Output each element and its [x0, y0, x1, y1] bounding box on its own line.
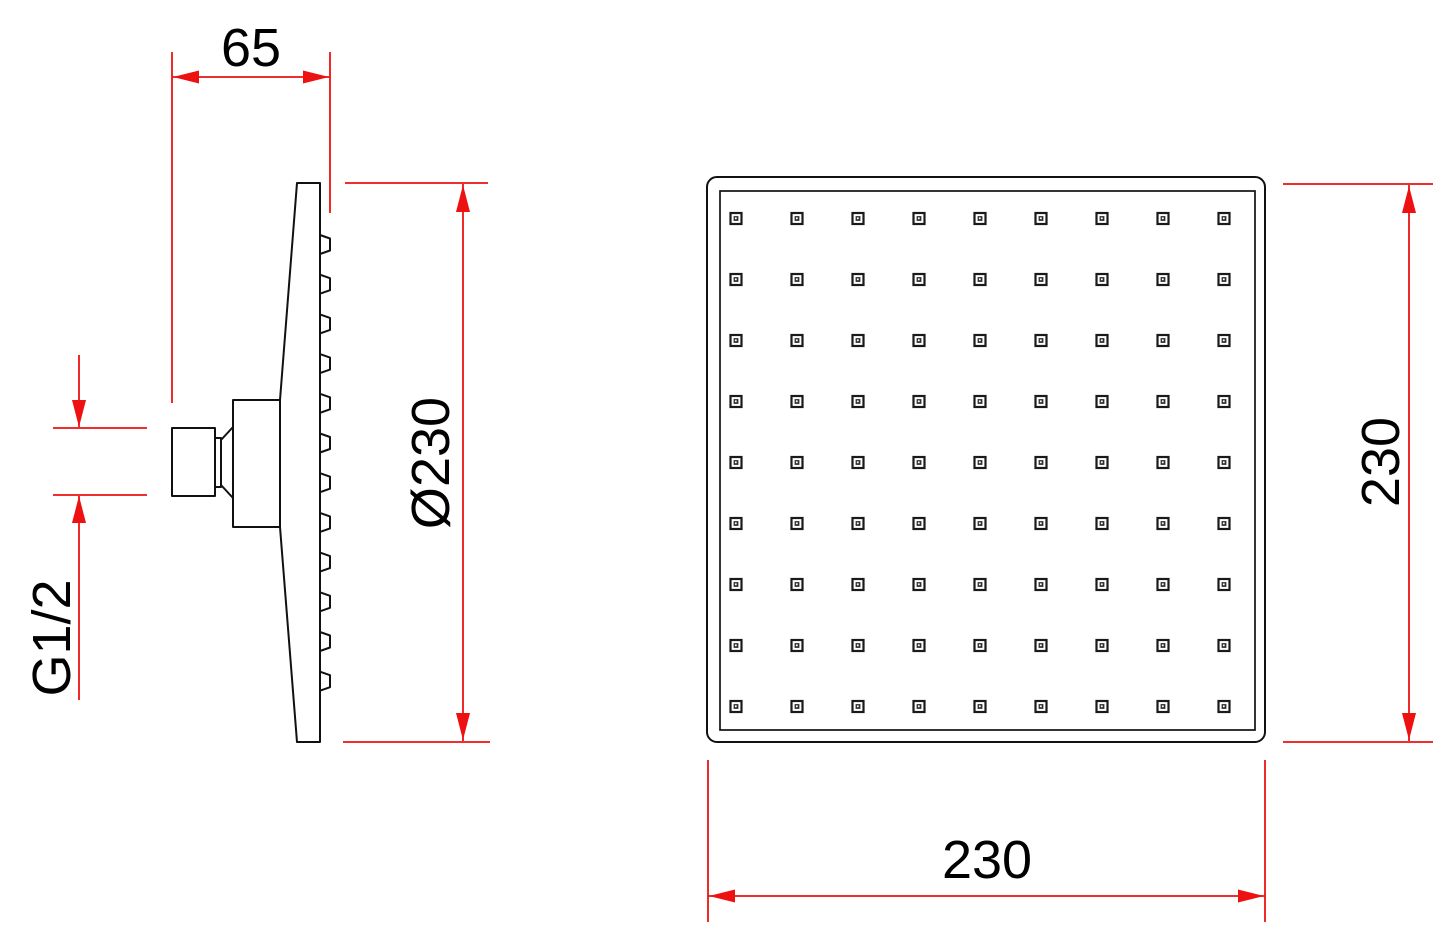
nozzle-hole: [731, 701, 742, 712]
nozzle-hole: [731, 213, 742, 224]
nozzle-hole: [792, 396, 803, 407]
nozzle-hole: [853, 335, 864, 346]
side-nozzle-bump: [320, 473, 330, 492]
nozzle-hole: [975, 274, 986, 285]
nozzle-hole: [792, 213, 803, 224]
side-view: [172, 183, 330, 742]
side-nozzle-bump: [320, 434, 330, 453]
nozzle-hole: [914, 457, 925, 468]
side-view-inlet-stub: [172, 428, 215, 496]
nozzle-hole: [1097, 457, 1108, 468]
nozzle-hole: [1219, 396, 1230, 407]
nozzle-hole: [975, 701, 986, 712]
nozzle-hole: [975, 579, 986, 590]
nozzle-hole: [792, 518, 803, 529]
nozzle-hole: [1158, 396, 1169, 407]
dim-label-side-diameter: Ø230: [401, 397, 461, 529]
nozzle-hole: [792, 701, 803, 712]
nozzle-hole: [1219, 213, 1230, 224]
nozzle-hole: [1036, 640, 1047, 651]
nozzle-hole: [853, 701, 864, 712]
dim-label-side-depth: 65: [221, 18, 281, 78]
front-view: [707, 177, 1265, 742]
nozzle-hole: [1036, 701, 1047, 712]
nozzle-hole: [1158, 457, 1169, 468]
nozzle-hole: [914, 579, 925, 590]
nozzle-hole: [975, 518, 986, 529]
nozzle-hole: [731, 274, 742, 285]
nozzle-hole: [1219, 640, 1230, 651]
nozzle-hole: [1097, 396, 1108, 407]
nozzle-hole: [731, 396, 742, 407]
nozzle-hole: [1219, 457, 1230, 468]
nozzle-hole: [1158, 335, 1169, 346]
nozzle-hole: [914, 396, 925, 407]
nozzle-hole: [1219, 518, 1230, 529]
nozzle-hole: [1097, 579, 1108, 590]
nozzle-hole: [731, 457, 742, 468]
side-nozzle-bump: [320, 672, 330, 691]
nozzle-hole: [792, 640, 803, 651]
side-nozzle-bump: [320, 632, 330, 651]
side-view-plate: [280, 183, 320, 742]
nozzle-hole: [1158, 640, 1169, 651]
nozzle-hole: [1036, 457, 1047, 468]
nozzle-hole: [1097, 335, 1108, 346]
nozzle-hole: [731, 335, 742, 346]
side-nozzle-bump: [320, 314, 330, 333]
nozzle-hole: [731, 640, 742, 651]
side-nozzle-bump: [320, 394, 330, 413]
side-nozzle-bump: [320, 235, 330, 254]
nozzle-hole: [914, 640, 925, 651]
dim-label-front-width: 230: [942, 830, 1032, 890]
nozzle-hole: [1158, 579, 1169, 590]
nozzle-hole: [1158, 518, 1169, 529]
nozzle-hole: [792, 274, 803, 285]
shower-head-drawing: 65 Ø230 G1/2 230 230: [0, 0, 1446, 945]
nozzle-hole: [914, 335, 925, 346]
nozzle-hole: [975, 457, 986, 468]
nozzle-hole: [853, 640, 864, 651]
side-nozzle-bumps: [320, 235, 330, 691]
nozzle-hole: [731, 518, 742, 529]
nozzle-hole: [1036, 396, 1047, 407]
nozzle-hole: [914, 701, 925, 712]
nozzle-hole: [1036, 335, 1047, 346]
side-nozzle-bump: [320, 592, 330, 611]
nozzle-hole: [792, 335, 803, 346]
dim-label-thread: G1/2: [22, 579, 82, 696]
nozzle-hole: [1097, 640, 1108, 651]
side-nozzle-bump: [320, 513, 330, 532]
nozzle-hole: [975, 640, 986, 651]
nozzle-hole: [914, 213, 925, 224]
nozzle-hole: [914, 274, 925, 285]
nozzle-hole: [1036, 518, 1047, 529]
technical-drawing-page: 65 Ø230 G1/2 230 230: [0, 0, 1446, 945]
nozzle-hole: [853, 518, 864, 529]
nozzle-hole: [1036, 579, 1047, 590]
side-nozzle-bump: [320, 354, 330, 373]
nozzle-hole: [1219, 274, 1230, 285]
nozzle-hole: [853, 274, 864, 285]
nozzle-hole: [1036, 274, 1047, 285]
nozzle-hole: [1097, 701, 1108, 712]
nozzle-hole: [853, 457, 864, 468]
nozzle-hole: [1097, 274, 1108, 285]
side-view-collar: [215, 427, 233, 498]
nozzle-hole: [792, 579, 803, 590]
nozzle-hole: [1158, 213, 1169, 224]
side-view-hub: [233, 400, 280, 527]
nozzle-hole: [1036, 213, 1047, 224]
nozzle-hole: [853, 579, 864, 590]
nozzle-hole: [731, 579, 742, 590]
side-nozzle-bump: [320, 553, 330, 572]
nozzle-hole: [1219, 701, 1230, 712]
nozzle-hole: [1097, 213, 1108, 224]
nozzle-hole: [853, 213, 864, 224]
dimension-thread: G1/2: [22, 355, 147, 700]
dimension-side-diameter: Ø230: [343, 183, 490, 742]
dimension-front-width: 230: [708, 760, 1265, 922]
side-nozzle-bump: [320, 275, 330, 294]
nozzle-hole: [853, 396, 864, 407]
nozzle-hole: [1219, 579, 1230, 590]
nozzle-hole: [1219, 335, 1230, 346]
nozzle-hole: [975, 213, 986, 224]
nozzle-hole: [914, 518, 925, 529]
nozzle-hole: [1158, 701, 1169, 712]
nozzle-hole: [792, 457, 803, 468]
dim-label-front-height: 230: [1351, 417, 1411, 507]
nozzle-hole: [975, 335, 986, 346]
nozzle-hole: [975, 396, 986, 407]
nozzle-hole: [1097, 518, 1108, 529]
dimension-front-height: 230: [1283, 184, 1433, 742]
nozzle-hole: [1158, 274, 1169, 285]
